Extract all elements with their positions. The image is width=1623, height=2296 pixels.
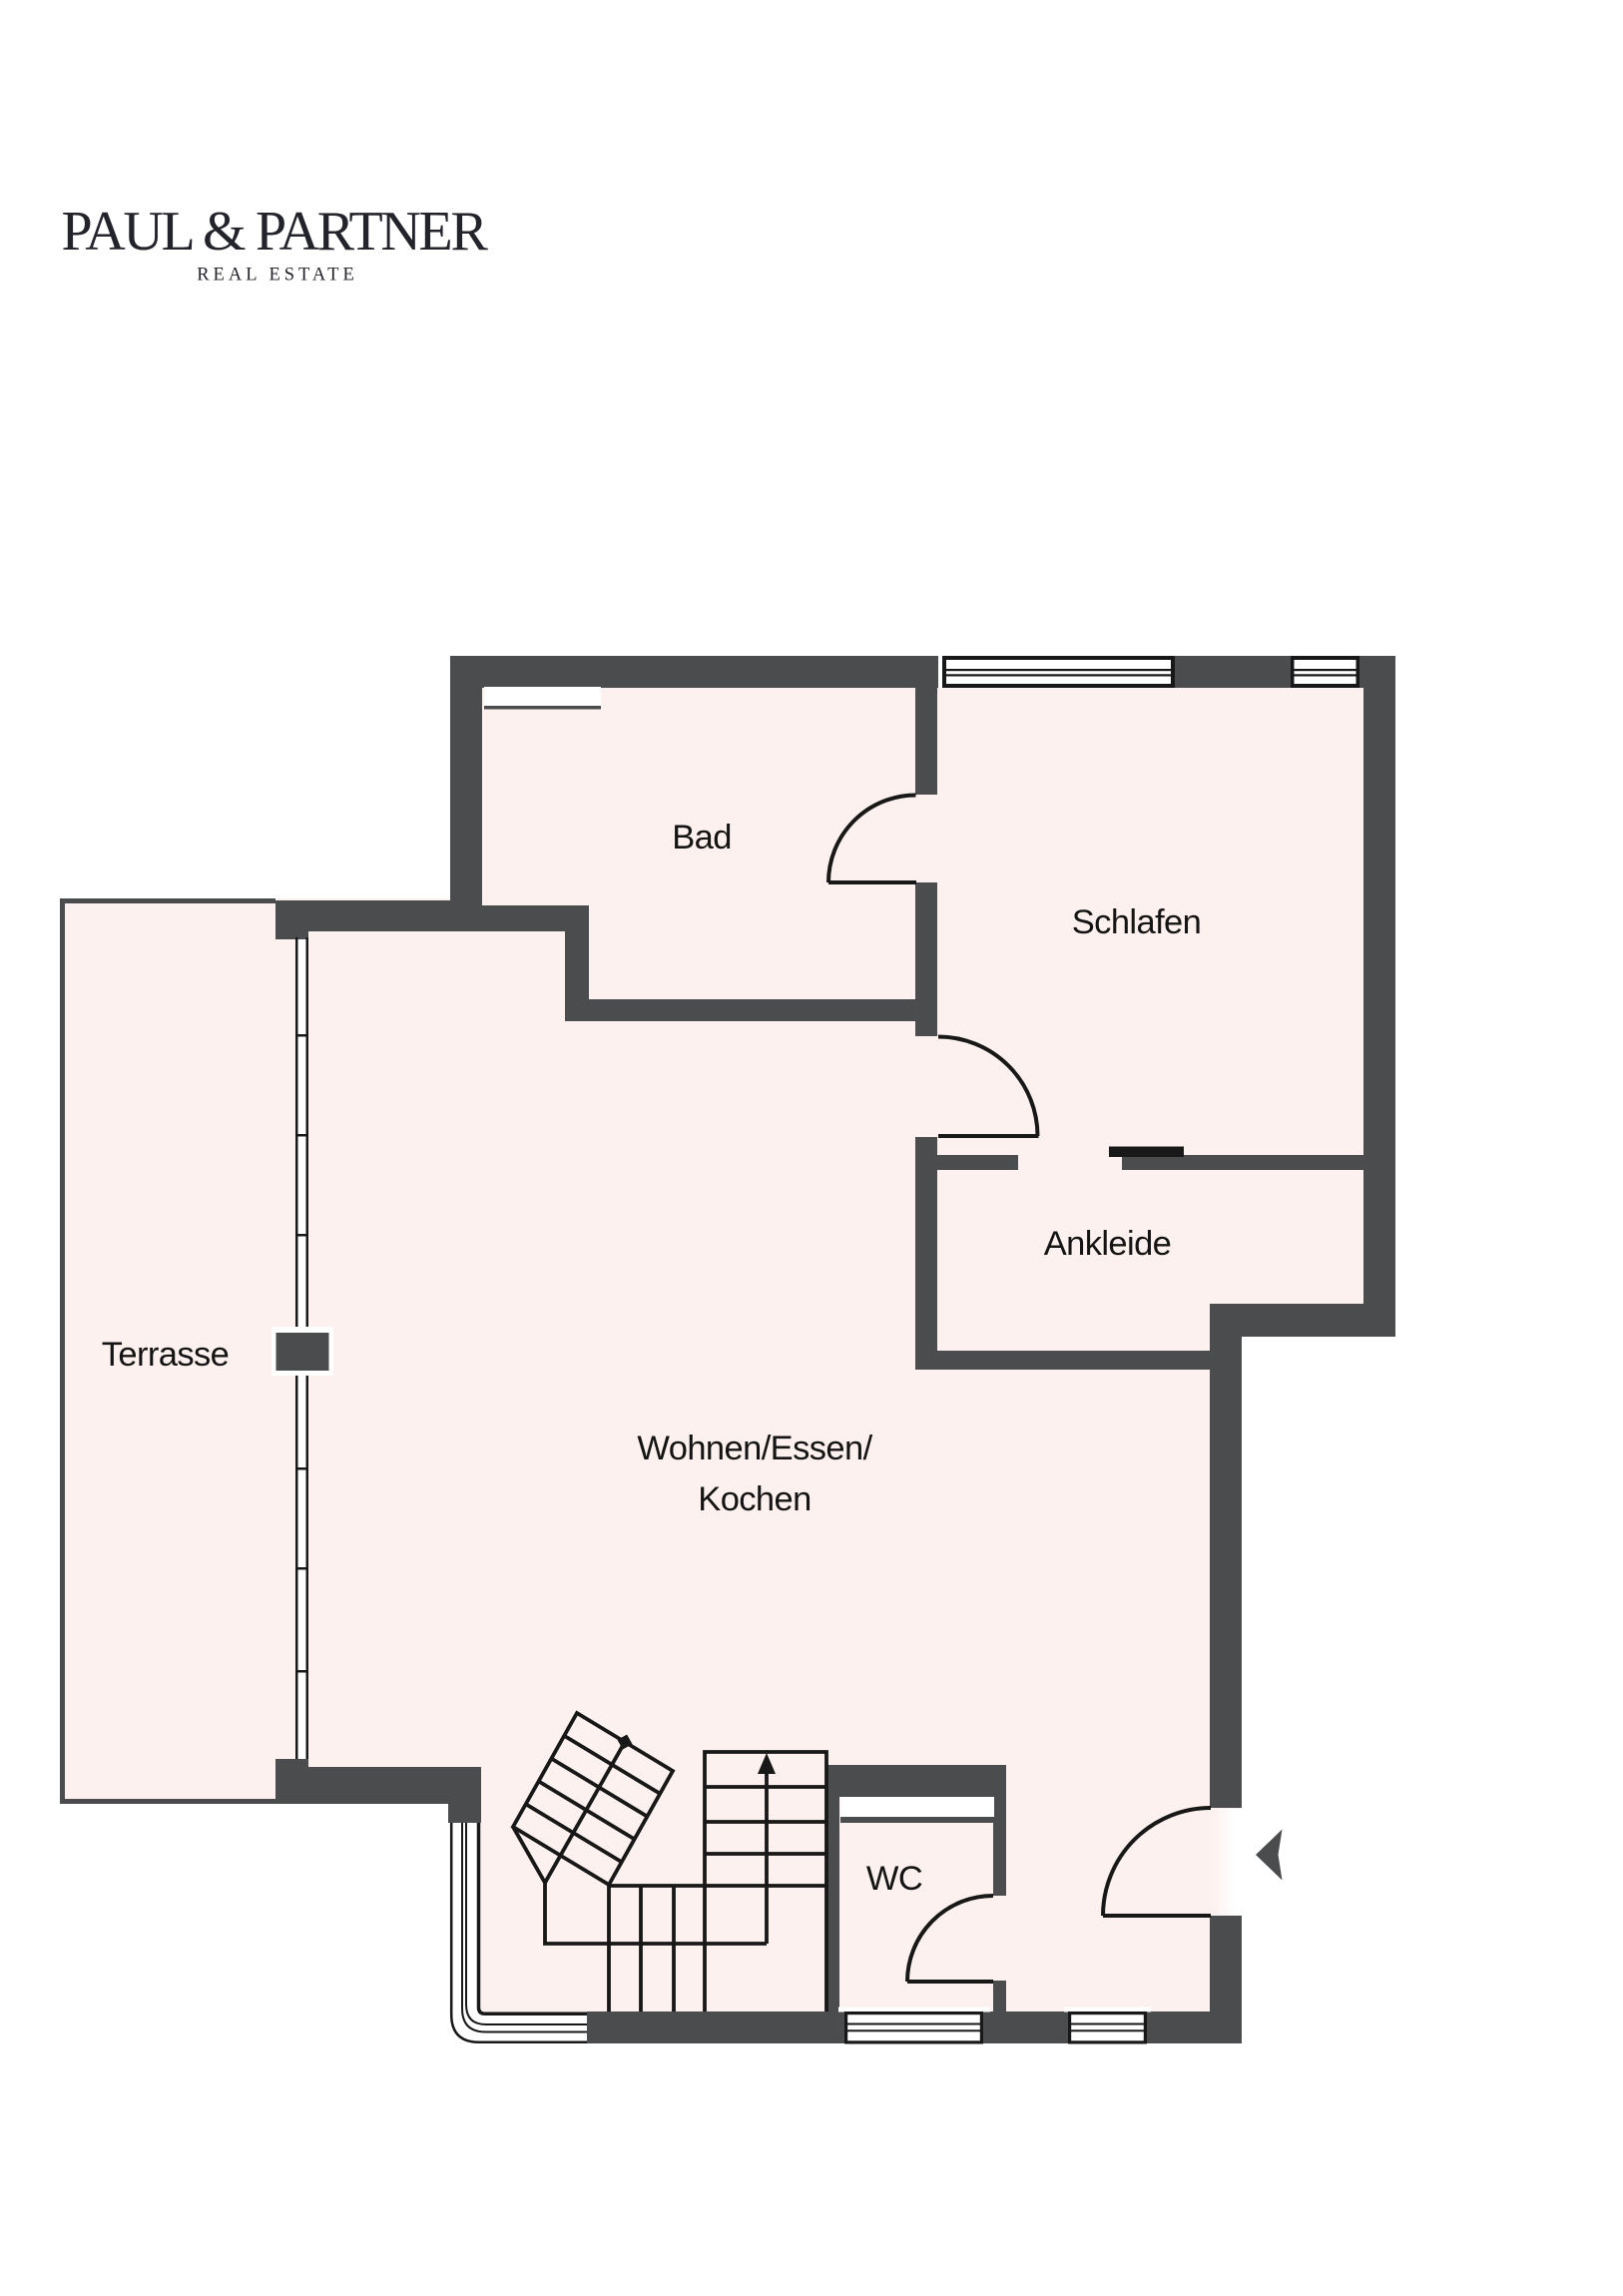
svg-text:Schlafen: Schlafen <box>1072 903 1201 941</box>
svg-text:PAUL & PARTNER: PAUL & PARTNER <box>61 201 488 263</box>
svg-text:Wohnen/Essen/: Wohnen/Essen/ <box>637 1430 872 1467</box>
svg-text:Bad: Bad <box>672 819 732 857</box>
svg-text:Kochen: Kochen <box>698 1480 811 1518</box>
svg-text:WC: WC <box>866 1860 922 1898</box>
svg-text:REAL ESTATE: REAL ESTATE <box>197 266 358 286</box>
svg-text:Ankleide: Ankleide <box>1044 1225 1172 1263</box>
svg-text:Terrasse: Terrasse <box>102 1336 230 1374</box>
